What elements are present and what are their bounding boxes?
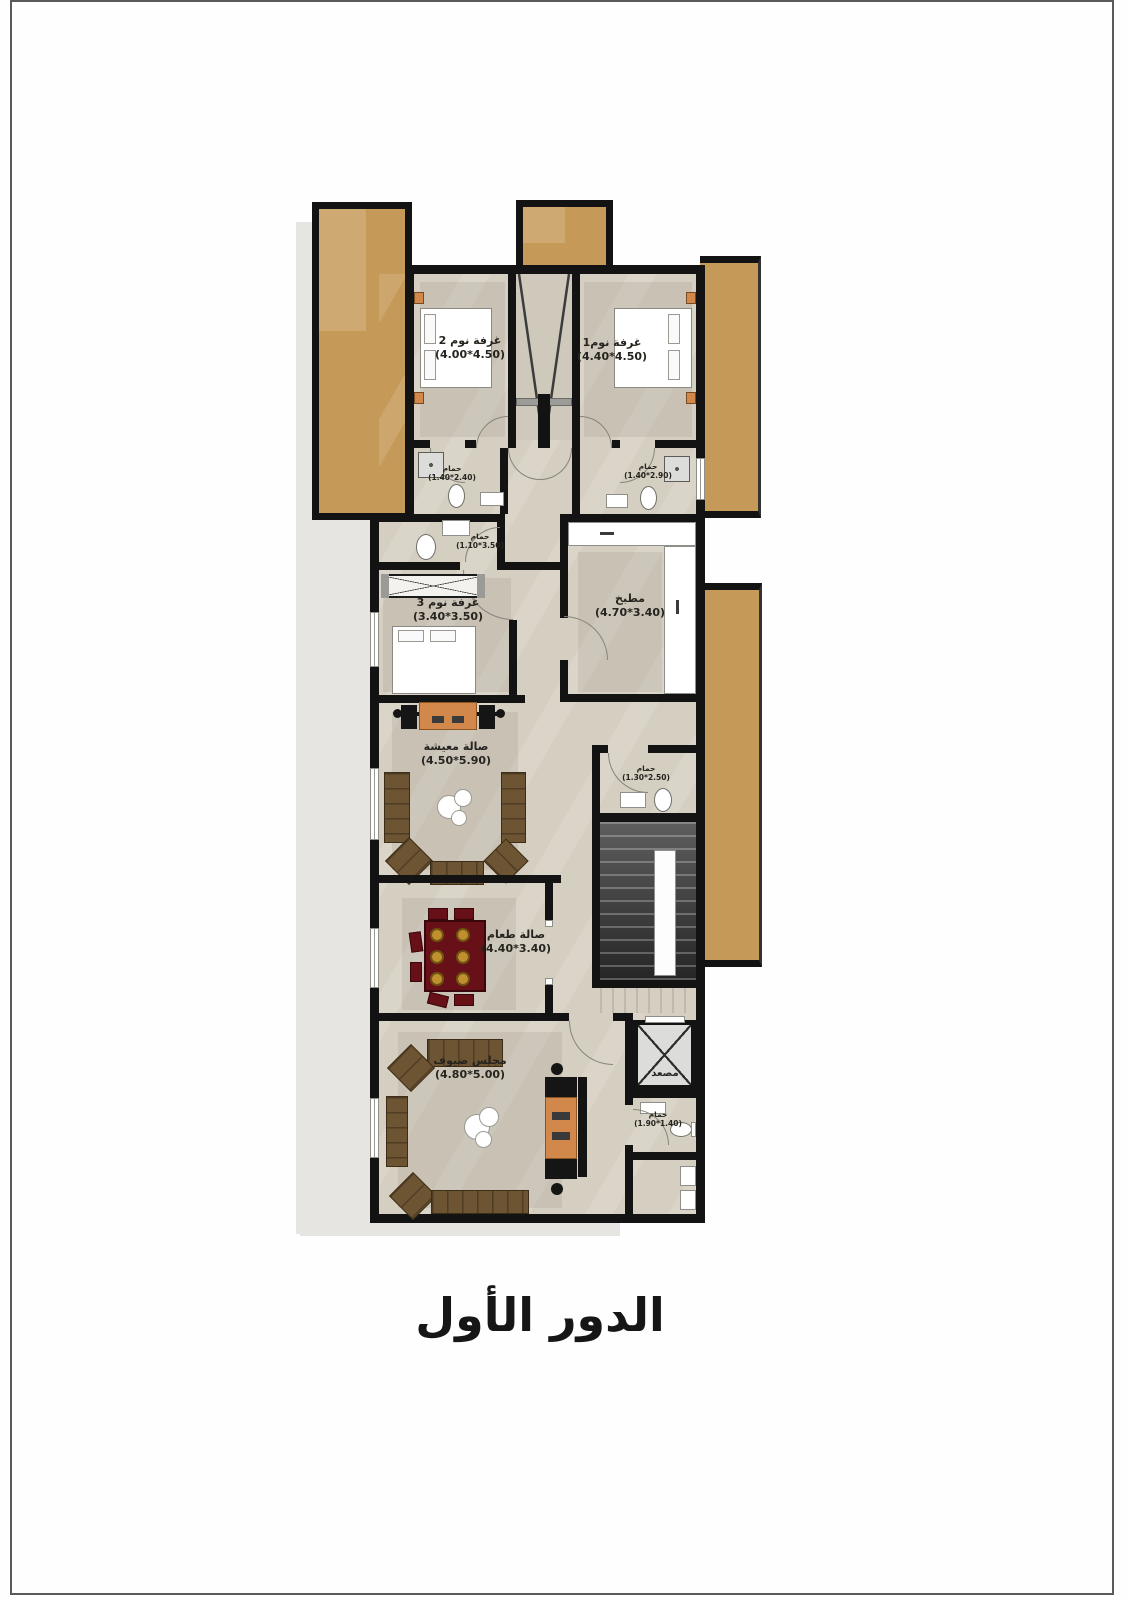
room-name: مجلس ضيوف <box>433 1054 506 1067</box>
bed-pillow <box>430 630 456 642</box>
wall <box>560 514 568 618</box>
toilet-tank <box>691 1122 696 1137</box>
speaker-icon <box>401 705 417 729</box>
wall <box>572 448 580 514</box>
toilet-icon <box>654 788 672 812</box>
stair-landing <box>600 988 696 1013</box>
wall <box>612 440 620 448</box>
door-jamb <box>545 920 553 927</box>
plate-icon <box>456 928 470 942</box>
nightstand-icon <box>414 392 424 404</box>
wall <box>592 813 600 988</box>
room-label-bedroom2: غرفة نوم 2 (4.50*4.00) <box>435 334 505 362</box>
balcony-highlight <box>319 209 366 331</box>
sofa-icon <box>384 772 410 843</box>
speaker-dot <box>393 709 402 718</box>
kitchen-counter <box>664 546 696 694</box>
room-label-wc-mid: حمام (2.50*1.30) <box>622 764 670 782</box>
plate-icon <box>456 950 470 964</box>
room-dims: (3.50*3.40) <box>413 610 483 623</box>
bed-pillow <box>398 630 424 642</box>
plan-title: الدور الأول <box>415 1288 665 1342</box>
wall <box>592 745 600 813</box>
room-dims: (2.50*1.30) <box>622 773 670 782</box>
room-dims: (1.40*1.90) <box>634 1119 682 1128</box>
sink-cabinet-icon <box>620 792 646 808</box>
shaft-center-post <box>538 394 550 448</box>
wall <box>370 1214 705 1223</box>
wall <box>625 1090 696 1098</box>
tv-console-drawer <box>432 716 444 723</box>
kitchen-counter <box>568 522 696 546</box>
console-drawer <box>552 1112 570 1120</box>
window <box>370 768 379 840</box>
plate-icon <box>430 928 444 942</box>
floor-plan-page: غرفة نوم 2 (4.50*4.00) غرفة نوم1 (4.50*4… <box>0 0 1126 1600</box>
plate-icon <box>456 972 470 986</box>
wall <box>508 274 516 448</box>
wall <box>379 1013 569 1021</box>
sink-cabinet-icon <box>480 492 504 506</box>
room-name: غرفة نوم1 <box>583 336 642 349</box>
balcony-top-left <box>312 202 412 520</box>
wall <box>414 440 430 448</box>
counter-handle <box>600 532 614 535</box>
wardrobe-end <box>477 574 485 598</box>
chair-icon <box>454 908 474 920</box>
wall <box>560 514 696 522</box>
sofa-icon <box>431 1190 529 1214</box>
tv-console-icon <box>419 702 477 730</box>
window <box>696 458 705 500</box>
balcony-right-lower <box>700 583 762 967</box>
room-dims: (4.50*4.40) <box>577 350 647 363</box>
cabinet-icon <box>680 1166 696 1186</box>
coffee-table-icon <box>475 1131 492 1148</box>
balcony-top-middle <box>516 200 613 274</box>
cabinet-icon <box>680 1190 696 1210</box>
room-name: حمام <box>471 532 490 541</box>
coffee-table-icon <box>454 789 472 807</box>
room-dims: (5.00*4.80) <box>435 1068 505 1081</box>
window <box>370 1098 379 1158</box>
wall <box>500 562 560 570</box>
speaker-dot <box>496 709 505 718</box>
wall <box>560 694 696 702</box>
room-name: مصعد <box>651 1068 678 1079</box>
coffee-table-icon <box>451 810 467 826</box>
room-name: حمام <box>637 764 656 773</box>
bed-pillow <box>668 350 680 380</box>
wall <box>405 265 705 274</box>
wall <box>465 440 476 448</box>
wall <box>545 883 553 920</box>
door-jamb <box>545 978 553 985</box>
sink-cabinet-icon <box>606 494 628 508</box>
wall <box>625 1152 705 1160</box>
chair-icon <box>454 994 474 1006</box>
chair-icon <box>410 962 422 982</box>
wardrobe-icon <box>381 574 485 598</box>
elevator-sill <box>645 1016 685 1023</box>
carpet-kitchen <box>578 552 662 692</box>
stair-landing-strip <box>654 850 676 976</box>
room-name: صالة معيشة <box>424 740 489 753</box>
room-name: مطبخ <box>615 592 645 605</box>
toilet-icon <box>640 486 657 510</box>
wall <box>578 1077 587 1177</box>
room-label-elevator: مصعد <box>651 1068 678 1081</box>
wall <box>545 985 553 1013</box>
wall <box>655 440 696 448</box>
staircase <box>600 822 696 980</box>
room-label-bath-left: حمام (2.40*1.40) <box>428 464 476 482</box>
room-dims: (2.40*1.40) <box>428 473 476 482</box>
console-dot <box>551 1183 563 1195</box>
balcony-right-upper <box>700 256 761 518</box>
console-icon <box>545 1097 577 1159</box>
room-label-kitchen: مطبخ (3.40*4.70) <box>595 592 665 620</box>
sofa-icon <box>501 772 526 843</box>
room-name: غرفة نوم 2 <box>439 334 502 347</box>
nightstand-icon <box>686 292 696 304</box>
room-label-bedroom1: غرفة نوم1 (4.50*4.40) <box>577 336 647 364</box>
wall <box>379 562 460 570</box>
wall <box>613 1013 625 1021</box>
window <box>370 612 379 667</box>
speaker-icon <box>479 705 495 729</box>
wall <box>592 980 696 988</box>
room-label-bedroom3: غرفة نوم 3 (3.50*3.40) <box>413 596 483 624</box>
balcony-highlight <box>523 207 565 243</box>
wall <box>405 265 414 520</box>
room-label-dining: صالة طعام (3.40*4.40) <box>481 928 551 956</box>
wall <box>696 265 705 1223</box>
counter-handle <box>676 600 679 614</box>
room-dims: (4.50*4.00) <box>435 348 505 361</box>
room-name: غرفة نوم 3 <box>417 596 480 609</box>
window <box>370 928 379 988</box>
coffee-table-icon <box>479 1107 499 1127</box>
room-label-bath-bottom: حمام (1.40*1.90) <box>634 1110 682 1128</box>
wall <box>509 620 517 703</box>
wardrobe-end <box>381 574 389 598</box>
room-label-bath-right: حمام (2.90*1.40) <box>624 462 672 480</box>
plate-icon <box>430 972 444 986</box>
console-cap <box>545 1159 577 1179</box>
sofa-icon <box>386 1096 408 1167</box>
room-dims: (2.90*1.40) <box>624 471 672 480</box>
room-dims: (5.90*4.50) <box>421 754 491 767</box>
tv-console-drawer <box>452 716 464 723</box>
bed-pillow <box>668 314 680 344</box>
nightstand-icon <box>414 292 424 304</box>
room-dims: (3.50*1.10) <box>456 541 504 550</box>
room-name: صالة طعام <box>487 928 545 941</box>
room-label-bath-small: حمام (3.50*1.10) <box>456 532 504 550</box>
plate-icon <box>430 950 444 964</box>
room-label-living: صالة معيشة (5.90*4.50) <box>421 740 491 768</box>
nightstand-icon <box>686 392 696 404</box>
console-dot <box>551 1063 563 1075</box>
toilet-icon <box>416 534 436 560</box>
wall <box>592 813 696 822</box>
console-drawer <box>552 1132 570 1140</box>
wall <box>379 875 561 883</box>
wall <box>370 514 505 522</box>
chair-icon <box>428 908 448 920</box>
room-label-majlis: مجلس ضيوف (5.00*4.80) <box>433 1054 506 1082</box>
console-cap <box>545 1077 577 1097</box>
room-dims: (3.40*4.40) <box>481 942 551 955</box>
chair-icon <box>409 931 424 952</box>
room-name: حمام <box>639 462 658 471</box>
room-name: حمام <box>649 1110 668 1119</box>
toilet-icon <box>448 484 465 508</box>
room-dims: (3.40*4.70) <box>595 606 665 619</box>
wall <box>648 745 696 753</box>
room-name: حمام <box>443 464 462 473</box>
